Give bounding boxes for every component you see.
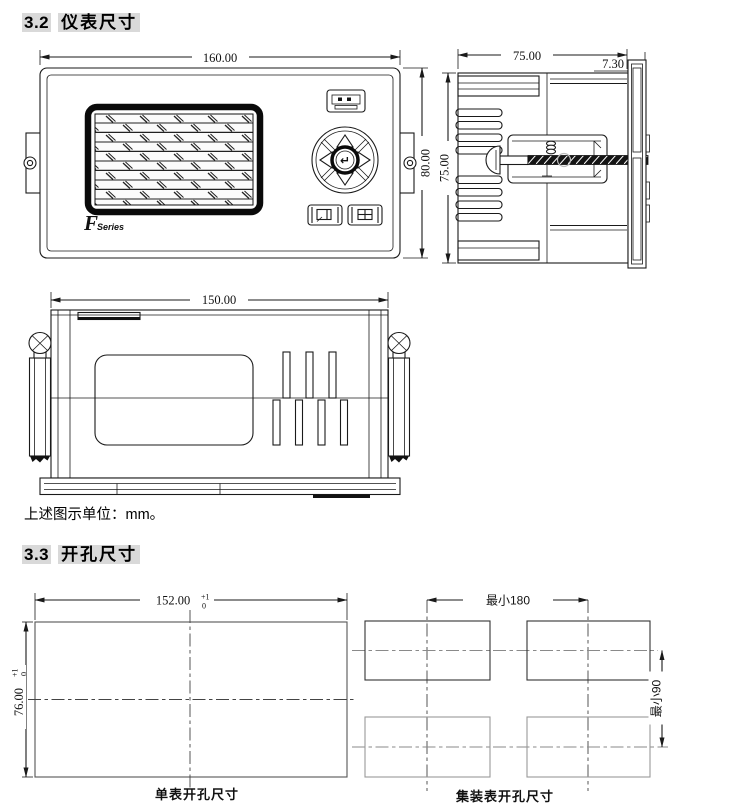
cutout-dimension-drawing: 152.00 +1 0 76.00 +1 0 单表开孔尺寸 — [0, 583, 750, 807]
single-cutout-height-tol-minus: 0 — [20, 672, 29, 676]
group-cutout-drawing: 最小180 最小90 集装表开孔尺寸 — [352, 592, 668, 804]
section-3-2-number: 3.2 — [22, 13, 51, 32]
front-width-dim-label: 160.00 — [203, 51, 237, 65]
top-left-screw — [29, 333, 51, 463]
group-vertical-dim-label: 最小90 — [650, 680, 664, 718]
top-body-outline — [51, 310, 388, 478]
side-front-bezel — [628, 60, 650, 268]
enter-key-icon: ↵ — [340, 154, 350, 168]
section-3-2-title: 仪表尺寸 — [58, 13, 140, 32]
group-horizontal-dimension: 最小180 — [427, 592, 588, 608]
front-width-dimension: 160.00 — [40, 49, 400, 65]
section-3-3-title: 开孔尺寸 — [58, 545, 140, 564]
front-height-dim-label: 80.00 — [419, 149, 433, 177]
side-bezel-dim-label: 7.30 — [602, 57, 624, 71]
top-width-dimension: 150.00 — [51, 292, 388, 308]
side-height-dim-label: 75.00 — [438, 154, 452, 182]
mounting-clamp — [486, 135, 648, 183]
front-view-drawing: 160.00 F Serie — [24, 49, 433, 258]
single-cutout-width-dimension: 152.00 +1 0 — [35, 592, 347, 620]
single-cutout-height-label: 76.00 — [12, 688, 26, 716]
grid-view-key — [348, 205, 382, 225]
front-right-ear — [399, 133, 416, 193]
group-vertical-dimension: 最小90 — [649, 651, 664, 748]
top-front-flange — [40, 478, 400, 498]
brand-logo-series: Series — [97, 222, 124, 232]
group-horizontal-dim-label: 最小180 — [486, 594, 530, 608]
screen-switch-key — [308, 205, 342, 225]
lcd-display — [88, 107, 260, 212]
brand-logo-f: F — [83, 211, 98, 235]
top-view-drawing: 150.00 — [29, 292, 410, 498]
side-depth-dim-label: 75.00 — [513, 49, 541, 63]
side-view-drawing: 75.00 7.30 75.00 — [437, 47, 650, 268]
top-width-dim-label: 150.00 — [202, 293, 236, 307]
screw-tip — [30, 456, 50, 463]
section-3-3-heading: 3.3开孔尺寸 — [22, 540, 140, 565]
section-3-3-number: 3.3 — [22, 545, 51, 564]
instrument-dimension-drawing: 160.00 F Serie — [0, 38, 750, 510]
section-3-2-heading: 3.2仪表尺寸 — [22, 8, 140, 33]
single-cutout-width-label: 152.00 — [156, 594, 190, 608]
single-cutout-caption: 单表开孔尺寸 — [155, 787, 239, 802]
top-right-screw — [388, 333, 410, 463]
front-left-ear — [24, 133, 41, 193]
usb-port-icon — [327, 90, 365, 112]
clamp-spring — [547, 141, 556, 154]
single-cutout-height-tol-plus: +1 — [11, 668, 20, 677]
single-cutout-width-tol-minus: 0 — [202, 602, 206, 611]
side-height-dimension: 75.00 — [437, 73, 456, 263]
single-cutout-drawing: 152.00 +1 0 76.00 +1 0 单表开孔尺寸 — [11, 592, 357, 802]
single-cutout-width-tol-plus: +1 — [201, 593, 210, 602]
manual-page: 3.2仪表尺寸 — [0, 0, 750, 807]
nav-pad: ↵ — [312, 127, 378, 193]
screw-tip — [389, 456, 409, 463]
units-note: 上述图示单位：mm。 — [24, 503, 164, 524]
group-cutout-caption: 集装表开孔尺寸 — [455, 789, 554, 804]
